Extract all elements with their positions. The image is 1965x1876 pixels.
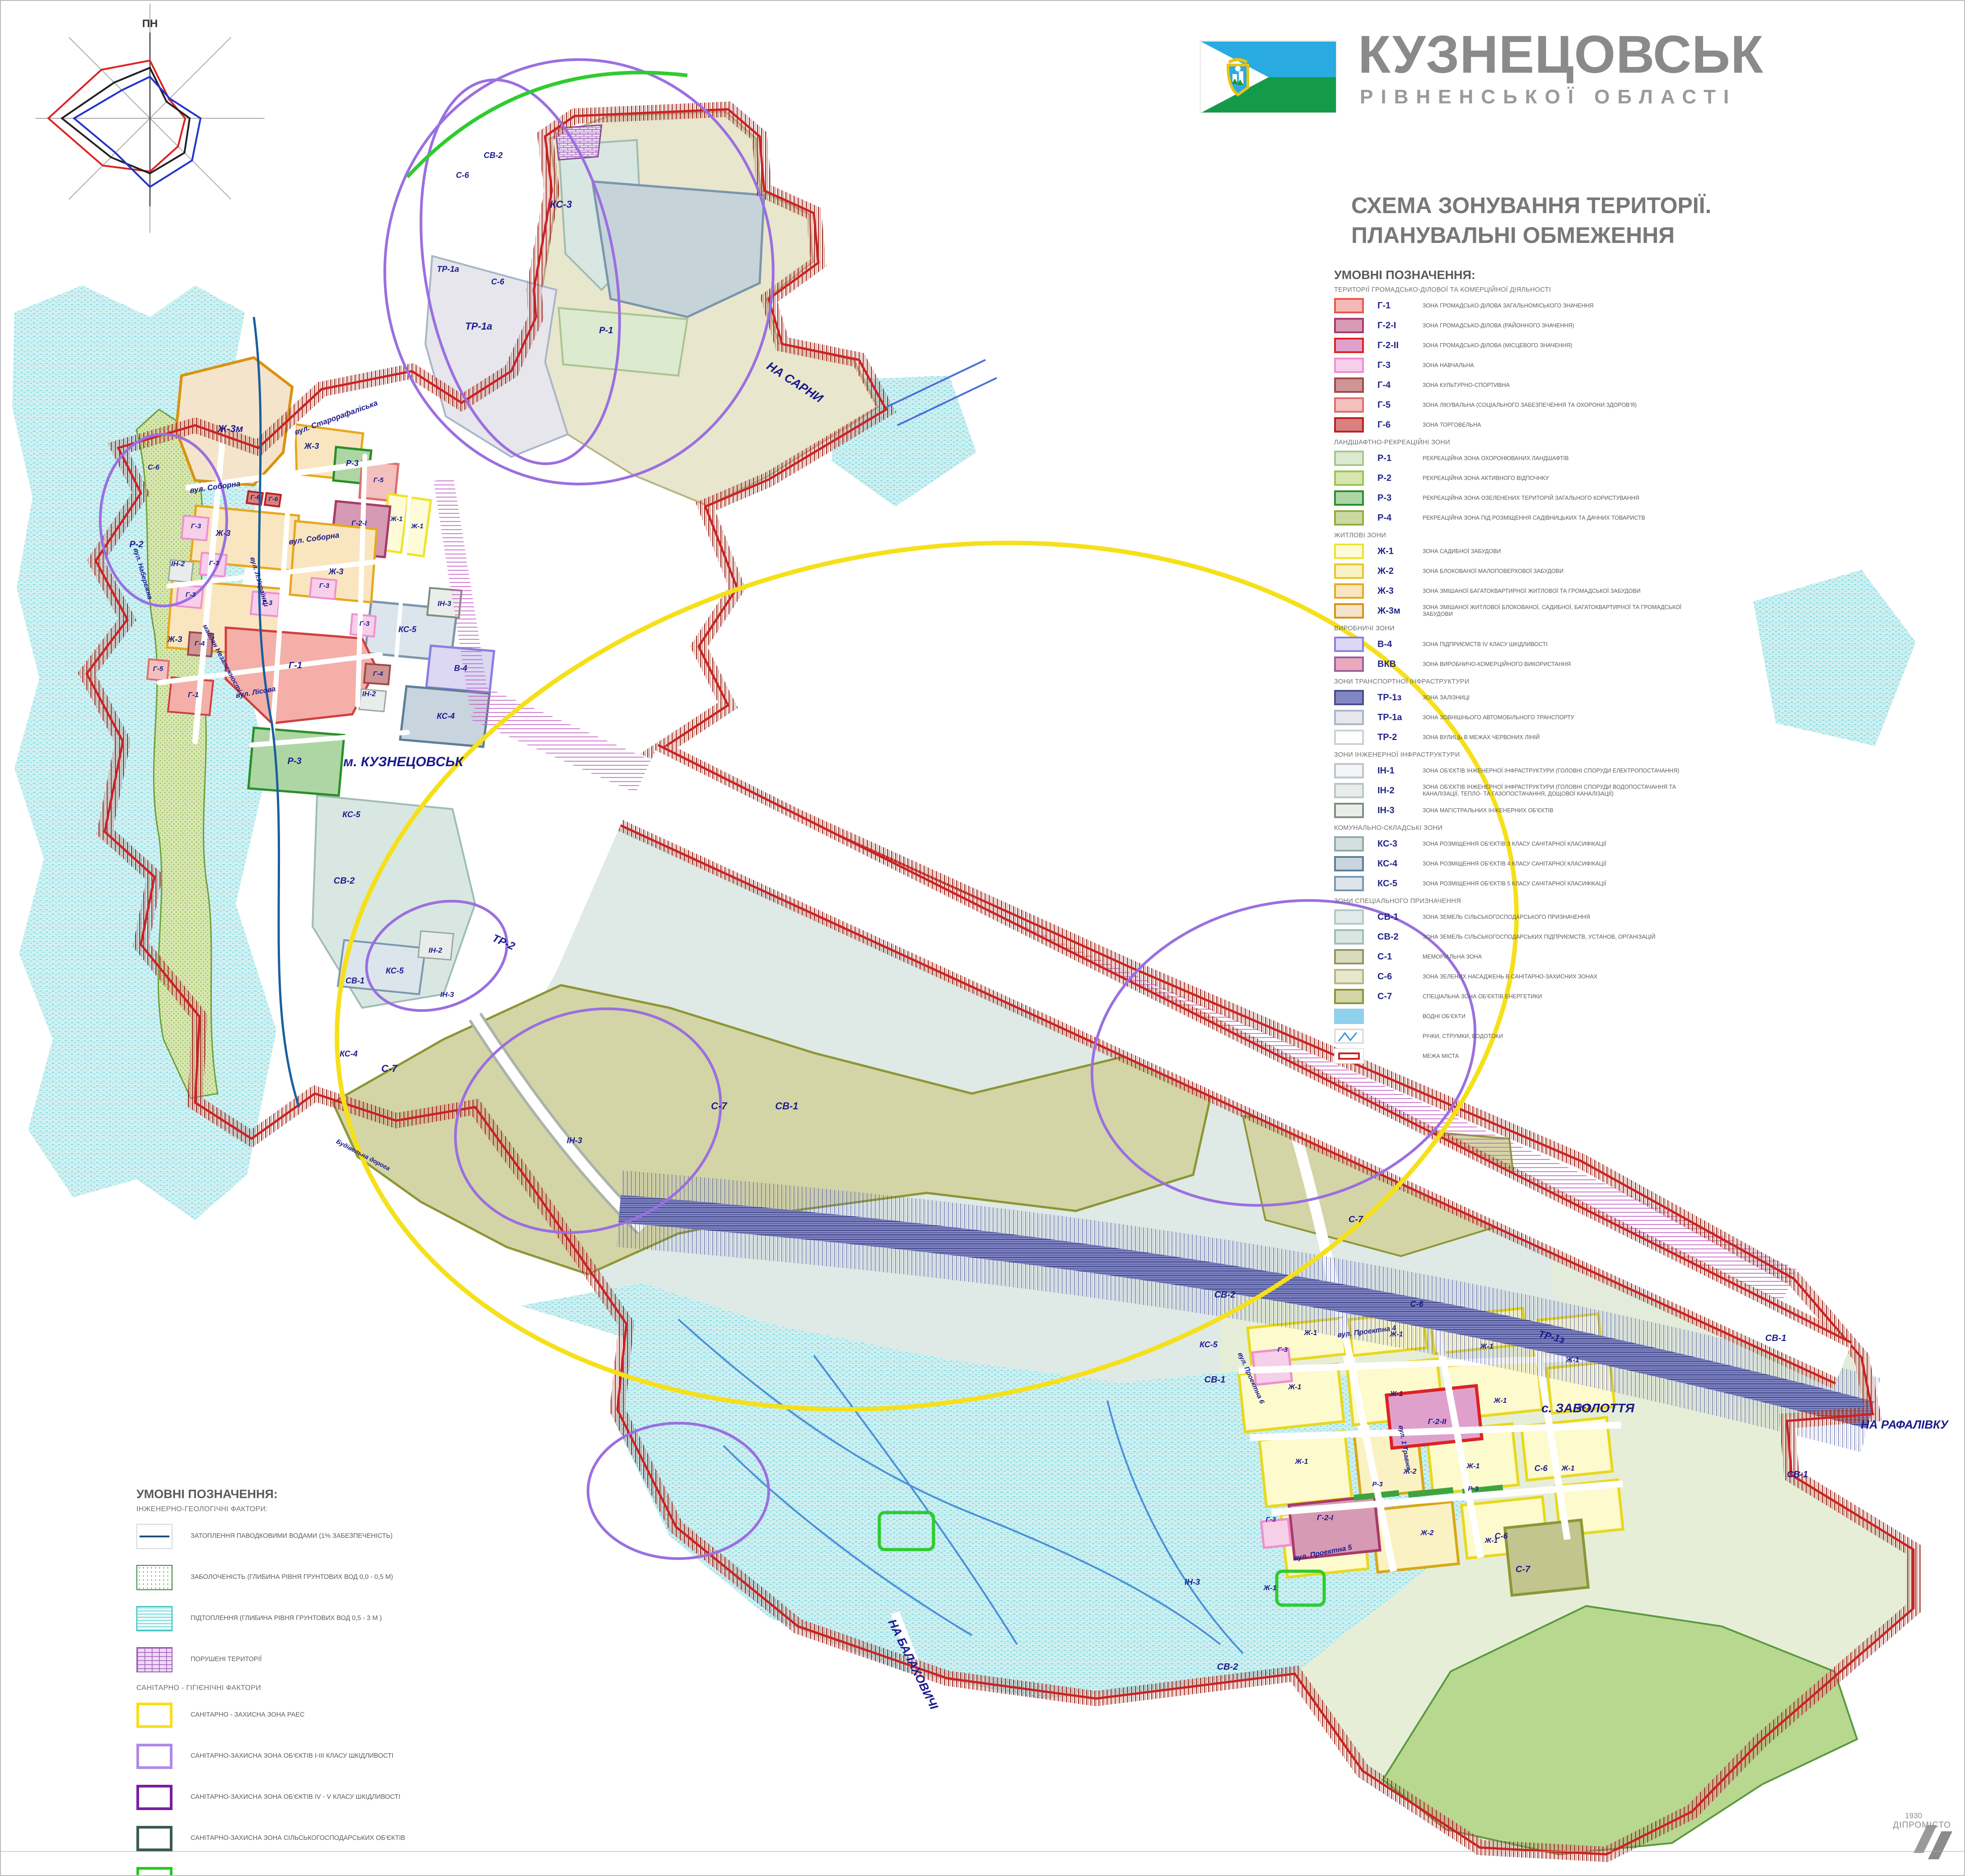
legend-zone-label: ЗОНА ЗМІШАНОЇ БАГАТОКВАРТИРНОЇ ЖИТЛОВОЇ …: [1423, 588, 1641, 595]
legend-swatch: [1334, 803, 1364, 818]
legend-zone-label: ЗОНА ГРОМАДСЬКО-ДІЛОВА (МІСЦЕВОГО ЗНАЧЕН…: [1423, 342, 1572, 349]
map-label: КС-3: [550, 199, 572, 210]
map-label: ТР-1а: [437, 265, 459, 274]
legend-zone-code: Р-1: [1377, 453, 1423, 464]
legend-zone-code: Г-2-І: [1377, 321, 1423, 331]
legend-zone-code: ТР-2: [1377, 732, 1423, 743]
map-label: Ж-1: [1493, 1397, 1507, 1405]
map-label: Г-4: [373, 670, 383, 678]
map-label: СВ-2: [334, 876, 355, 886]
legend-swatch: [1334, 1009, 1364, 1024]
legend-item: Р-3РЕКРЕАЦІЙНА ЗОНА ОЗЕЛЕНЕНИХ ТЕРИТОРІЙ…: [1334, 488, 1741, 508]
legend-swatch: [1334, 318, 1364, 333]
legend-swatch: [1334, 338, 1364, 353]
legend-factor-label: ЗАБОЛОЧЕНІСТЬ (ГЛИБИНА РІВНЯ ГРУНТОВИХ В…: [191, 1573, 393, 1581]
legend-swatch: [1334, 949, 1364, 964]
legend-zone-label: ЗОНА ПІДПРИЄМСТВ IV КЛАСУ ШКІДЛИВОСТІ: [1423, 641, 1548, 648]
map-label: КС-4: [340, 1049, 358, 1058]
map-label: Г-6: [268, 495, 278, 503]
legend-factor-label: ЗАТОПЛЕННЯ ПАВОДКОВИМИ ВОДАМИ (1% ЗАБЕЗП…: [191, 1532, 392, 1540]
legend-zone-code: СВ-2: [1377, 932, 1423, 942]
legend-swatch: [1334, 836, 1364, 852]
legend-item: В-4ЗОНА ПІДПРИЄМСТВ IV КЛАСУ ШКІДЛИВОСТІ: [1334, 634, 1741, 654]
legend-item: Г-5ЗОНА ЛІКУВАЛЬНА (СОЦІАЛЬНОГО ЗАБЕЗПЕЧ…: [1334, 395, 1741, 415]
logo-name: ДІПРОМІСТО: [1865, 1820, 1951, 1830]
legend-zone-label: ЗОНА РОЗМІЩЕННЯ ОБ'ЄКТІВ 5 КЛАСУ САНІТАР…: [1423, 880, 1606, 887]
legend-item: С-7СПЕЦІАЛЬНА ЗОНА ОБ'ЄКТІВ ЕНЕРГЕТИКИ: [1334, 987, 1741, 1006]
map-label: Ж-1: [390, 515, 402, 523]
map-label: С-6: [456, 171, 469, 180]
map-label: Г-4: [195, 640, 205, 647]
legend-swatch: [136, 1606, 173, 1631]
legend-swatch: [1334, 563, 1364, 579]
map-label: Р-3: [1372, 1480, 1383, 1488]
legend-item: САНІТАРНО-ЗАХИСНА ЗОНА СІЛЬСЬКОГОСПОДАРС…: [136, 1818, 611, 1859]
dipromisto-logo: 1930 ДІПРОМІСТО: [1865, 1811, 1951, 1830]
map-label: Ж-1: [411, 522, 423, 530]
legend-item: ЗАБОЛОЧЕНІСТЬ (ГЛИБИНА РІВНЯ ГРУНТОВИХ В…: [136, 1557, 611, 1598]
legend-zone-label: ЗОНА КУЛЬТУРНО-СПОРТИВНА: [1423, 382, 1510, 389]
legend-item: Г-2-ІІЗОНА ГРОМАДСЬКО-ДІЛОВА (МІСЦЕВОГО …: [1334, 335, 1741, 355]
map-label: КС-4: [437, 712, 455, 721]
region-subtitle: РІВНЕНСЬКОЇ ОБЛАСТІ: [1360, 86, 1764, 108]
legend-section-header: ЗОНИ ТРАНСПОРТНОЇ ІНФРАСТРУКТУРИ: [1334, 678, 1741, 685]
legend-zone-code: Ж-3: [1377, 586, 1423, 596]
legend-section-header: ЖИТЛОВІ ЗОНИ: [1334, 532, 1741, 539]
legend-zone-label: СПЕЦІАЛЬНА ЗОНА ОБ'ЄКТІВ ЕНЕРГЕТИКИ: [1423, 993, 1542, 1000]
map-label: Ж-3: [215, 529, 231, 538]
legend-zone-label: РЕКРЕАЦІЙНА ЗОНА АКТИВНОГО ВІДПОЧНКУ: [1423, 475, 1549, 482]
legend-swatch: [1334, 637, 1364, 652]
legend-zone-label: ЗОНА ВИРОБНИЧО-КОМЕРЦІЙНОГО ВИКОРИСТАННЯ: [1423, 661, 1571, 668]
legend-zone-label: ЗОНА ЗЕМЕЛЬ СІЛЬСЬКОГОСПОДАРСЬКИХ ПІДПРИ…: [1423, 934, 1656, 940]
legend-swatch: [1334, 876, 1364, 891]
legend-zone-code: Р-2: [1377, 473, 1423, 484]
map-label: Ж-1: [1303, 1329, 1317, 1337]
map-label: С-7: [711, 1100, 728, 1112]
legend-section-header: ЗОНИ СПЕЦІАЛЬНОГО ПРИЗНАЧЕННЯ: [1334, 898, 1741, 905]
legend-item: ІН-2ЗОНА ОБ'ЄКТІВ ІНЖЕНЕРНОЇ ІНФРАСТРУКТ…: [1334, 781, 1741, 801]
legend-zone-label: ЗОНА ТОРГОВЕЛЬНА: [1423, 422, 1481, 428]
legend-zone-label: ЗОНА ОБ'ЄКТІВ ІНЖЕНЕРНОЇ ІНФРАСТРУКТУРИ …: [1423, 784, 1712, 797]
legend-factor-label: ПОРУШЕНІ ТЕРИТОРІЇ: [191, 1656, 262, 1663]
legend-section-header: ТЕРИТОРІЇ ГРОМАДСЬКО-ДІЛОВОЇ ТА КОМЕРЦІЙ…: [1334, 286, 1741, 293]
legend-zone-label: ЗОНА ЗЕМЕЛЬ СІЛЬСЬКОГОСПОДАРСЬКОГО ПРИЗН…: [1423, 914, 1590, 921]
legend-item: Г-4ЗОНА КУЛЬТУРНО-СПОРТИВНА: [1334, 375, 1741, 395]
legend-swatch: [136, 1524, 173, 1549]
map-label: В-4: [454, 664, 467, 673]
legend-factor-label: САНІТАРНО-ЗАХИСНА ЗОНА ОБ'ЄКТІВ І-ІІІ КЛ…: [191, 1752, 393, 1760]
map-label: Г-3: [191, 522, 201, 530]
legend-zone-label: ЗОНА ЛІКУВАЛЬНА (СОЦІАЛЬНОГО ЗАБЕЗПЕЧЕНН…: [1423, 402, 1637, 409]
map-label: Г-3: [1278, 1346, 1288, 1354]
legend-swatch: [1334, 929, 1364, 945]
plan-sheet: м. КУЗНЕЦОВСЬКс. ЗАБОЛОТТЯНА САРНИНА РАФ…: [0, 0, 1965, 1876]
legend-factor-label: САНІТАРНО-ЗАХИСНА ЗОНА ОБ'ЄКТІВ IV - V К…: [191, 1793, 401, 1801]
map-label: С-6: [148, 464, 159, 471]
map-label: С-7: [1516, 1564, 1531, 1574]
legend-section-header: ЛАНДШАФТНО-РЕКРЕАЦІЙНІ ЗОНИ: [1334, 439, 1741, 446]
legend-zone-code: ІН-3: [1377, 805, 1423, 816]
title-block: КУЗНЕЦОВСЬК РІВНЕНСЬКОЇ ОБЛАСТІ: [1200, 28, 1950, 113]
map-label: ІН-2: [362, 690, 376, 698]
legend-swatch: [1334, 417, 1364, 433]
logo-year: 1930: [1865, 1811, 1922, 1820]
legend-swatch: [1334, 451, 1364, 466]
map-label: Г-1: [289, 661, 302, 670]
legend-zone-code: ТР-1а: [1377, 712, 1423, 723]
legend-zone-code: Ж-1: [1377, 546, 1423, 557]
legend-item: РІЧКИ, СТРУМКИ, ВОДОТОКИ: [1334, 1026, 1741, 1046]
zone-in2-a: [418, 931, 453, 960]
map-label: ТР-1а: [465, 321, 492, 332]
legend-section-header: ЗОНИ ІНЖЕНЕРНОЇ ІНФРАСТРУКТУРИ: [1334, 751, 1741, 759]
legend-item: ВКВЗОНА ВИРОБНИЧО-КОМЕРЦІЙНОГО ВИКОРИСТА…: [1334, 654, 1741, 674]
legend-item: С-6ЗОНА ЗЕЛЕНИХ НАСАДЖЕНЬ В САНІТАРНО-ЗА…: [1334, 967, 1741, 987]
legend-item: ПІДТОПЛЕННЯ (ГЛИБИНА РІВНЯ ГРУНТОВИХ ВОД…: [136, 1598, 611, 1639]
legend-item: ВОДНІ ОБ'ЄКТИ: [1334, 1006, 1741, 1026]
legend-zone-code: ТР-1з: [1377, 693, 1423, 703]
map-label: Ж-1: [1263, 1584, 1276, 1592]
map-label: Ж-2: [1420, 1529, 1433, 1537]
map-label: Г-6: [250, 493, 260, 501]
legend-zone-label: ЗОНА МАГІСТРАЛЬНИХ ІНЖЕНЕРНИХ ОБ'ЄКТІВ: [1423, 807, 1553, 814]
legend-swatch: [1334, 1048, 1364, 1064]
map-label: Г-5: [373, 476, 384, 484]
scheme-title: СХЕМА ЗОНУВАННЯ ТЕРИТОРІЇ. ПЛАНУВАЛЬНІ О…: [1351, 191, 1711, 250]
legend-swatch: [1334, 856, 1364, 871]
legend-item: Г-3ЗОНА НАВЧАЛЬНА: [1334, 355, 1741, 375]
map-label: Г-3: [359, 620, 370, 628]
legend-zone-label: ЗОНА ЗМІШАНОЇ ЖИТЛОВОЇ БЛОКОВАНОЇ, САДИБ…: [1423, 604, 1712, 618]
legend-zone-code: Г-2-ІІ: [1377, 340, 1423, 351]
zone-r1: [559, 308, 687, 376]
map-label: СВ-1: [775, 1100, 798, 1112]
map-label: СВ-1: [345, 976, 364, 985]
legend-swatch: [136, 1703, 173, 1728]
legend-zone-code: ВКВ: [1377, 659, 1423, 670]
legend-section-header: ІНЖЕНЕРНО-ГЕОЛОГІЧНІ ФАКТОРИ:: [136, 1505, 611, 1513]
legend-swatch: [1334, 544, 1364, 559]
legend-zone-label: ВОДНІ ОБ'ЄКТИ: [1423, 1013, 1466, 1020]
legend-swatch: [136, 1826, 173, 1851]
map-label: Р-3: [346, 459, 359, 468]
legend-factor-label: САНІТАРНО - ЗАХИСНА ЗОНА РАЕС: [191, 1711, 304, 1719]
legend-zone-code: Р-4: [1377, 513, 1423, 523]
map-label: Ж-1: [1577, 1404, 1590, 1411]
map-label: ІН-2: [171, 560, 185, 568]
legend-factor-label: ПІДТОПЛЕННЯ (ГЛИБИНА РІВНЯ ГРУНТОВИХ ВОД…: [191, 1615, 382, 1622]
legend-swatch: [1334, 490, 1364, 506]
legend-zone-code: Г-5: [1377, 400, 1423, 410]
map-label: С-7: [1349, 1215, 1363, 1224]
legend-zone-label: РІЧКИ, СТРУМКИ, ВОДОТОКИ: [1423, 1033, 1503, 1040]
legend-zone-code: Ж-3м: [1377, 606, 1423, 616]
legend-item: ТР-1зЗОНА ЗАЛІЗНИЦІ: [1334, 688, 1741, 708]
map-label: Г-2-І: [351, 520, 367, 527]
legend-item: САНІТАРНО-ЗАХИСНА ЗОНА КЛАДОВИЩ: [136, 1859, 611, 1876]
map-label: СВ-2: [484, 151, 503, 160]
legend-item: ЗАТОПЛЕННЯ ПАВОДКОВИМИ ВОДАМИ (1% ЗАБЕЗП…: [136, 1516, 611, 1557]
legend-zone-code: КС-5: [1377, 879, 1423, 889]
map-label: С-6: [491, 277, 504, 286]
map-label: КС-5: [342, 810, 361, 819]
legend-zone-code: Ж-2: [1377, 566, 1423, 577]
legend-swatch: [1334, 470, 1364, 486]
legend-zone-label: ЗОНА ГРОМАДСЬКО-ДІЛОВА (РАЙОННОГО ЗНАЧЕН…: [1423, 322, 1574, 329]
legend-swatch: [136, 1647, 173, 1672]
map-label: КС-5: [1200, 1340, 1218, 1349]
legend-swatch: [136, 1744, 173, 1769]
legend-item: Р-1РЕКРЕАЦІЙНА ЗОНА ОХОРОНЮВАНИХ ЛАНДШАФ…: [1334, 448, 1741, 468]
map-label: Г-3: [186, 591, 196, 599]
legend-swatch: [1334, 730, 1364, 745]
legend-swatch: [1334, 358, 1364, 373]
legend-item: КС-4ЗОНА РОЗМІЩЕННЯ ОБ'ЄКТІВ 4 КЛАСУ САН…: [1334, 854, 1741, 874]
legend-item: ТР-2ЗОНА ВУЛИЦЬ В МЕЖАХ ЧЕРВОНИХ ЛІНІЙ: [1334, 727, 1741, 747]
map-label: Г-3: [209, 559, 219, 567]
legend-item: ІН-3ЗОНА МАГІСТРАЛЬНИХ ІНЖЕНЕРНИХ ОБ'ЄКТ…: [1334, 801, 1741, 820]
legend-zone-label: ЗОНА РОЗМІЩЕННЯ ОБ'ЄКТІВ 3 КЛАСУ САНІТАР…: [1423, 841, 1606, 847]
flag-placeholder: [1200, 41, 1336, 113]
map-label: С-6: [1534, 1464, 1548, 1473]
legend-item: С-1МЕМОРІАЛЬНА ЗОНА: [1334, 947, 1741, 967]
legend-item: СВ-1ЗОНА ЗЕМЕЛЬ СІЛЬСЬКОГОСПОДАРСЬКОГО П…: [1334, 907, 1741, 927]
legend-zone-label: ЗОНА САДИБНОЇ ЗАБУДОВИ: [1423, 548, 1501, 555]
map-label: Ж-1: [1484, 1537, 1498, 1545]
legend-item: Г-2-ІЗОНА ГРОМАДСЬКО-ДІЛОВА (РАЙОННОГО З…: [1334, 316, 1741, 335]
legend-zone-code: Г-4: [1377, 380, 1423, 391]
legend-swatch: [136, 1867, 173, 1876]
legend-swatch: [136, 1565, 173, 1590]
legend-swatch: [1334, 690, 1364, 705]
legend-item: Р-2РЕКРЕАЦІЙНА ЗОНА АКТИВНОГО ВІДПОЧНКУ: [1334, 468, 1741, 488]
legend-zone-code: КС-3: [1377, 839, 1423, 849]
legend-zone-code: ІН-1: [1377, 766, 1423, 776]
legend-swatch: [1334, 763, 1364, 778]
legend-swatch: [136, 1785, 173, 1810]
legend-section-header: САНІТАРНО - ГІГІЄНІЧНІ ФАКТОРИ: [136, 1684, 611, 1692]
legend-zone-code: КС-4: [1377, 859, 1423, 869]
legend-swatch: [1334, 377, 1364, 393]
legend-zone-label: РЕКРЕАЦІЙНА ЗОНА ПІД РОЗМІЩЕННЯ САДІВНИЦ…: [1423, 515, 1645, 521]
legend-item: ІН-1ЗОНА ОБ'ЄКТІВ ІНЖЕНЕРНОЇ ІНФРАСТРУКТ…: [1334, 761, 1741, 781]
legend-zone-code: Г-6: [1377, 420, 1423, 430]
legend-zone-label: ЗОНА ЗАЛІЗНИЦІ: [1423, 694, 1470, 701]
legend-item: Ж-3ЗОНА ЗМІШАНОЇ БАГАТОКВАРТИРНОЇ ЖИТЛОВ…: [1334, 581, 1741, 601]
legend-swatch: [1334, 783, 1364, 798]
map-label: Ж-3: [167, 635, 182, 644]
legend-title-2: УМОВНІ ПОЗНАЧЕННЯ:: [136, 1487, 611, 1501]
map-label: Р-1: [599, 326, 613, 335]
legend-swatch: [1334, 397, 1364, 413]
legend-swatch: [1334, 510, 1364, 526]
legend-zone-label: ЗОНА ОБ'ЄКТІВ ІНЖЕНЕРНОЇ ІНФРАСТРУКТУРИ …: [1423, 768, 1679, 774]
map-label: Г-3: [1266, 1516, 1276, 1523]
legend-item: КС-5ЗОНА РОЗМІЩЕННЯ ОБ'ЄКТІВ 5 КЛАСУ САН…: [1334, 874, 1741, 894]
legend-restrictions: УМОВНІ ПОЗНАЧЕННЯ: ІНЖЕНЕРНО-ГЕОЛОГІЧНІ …: [136, 1487, 611, 1876]
legend-zone-label: РЕКРЕАЦІЙНА ЗОНА ОЗЕЛЕНЕНИХ ТЕРИТОРІЙ ЗА…: [1423, 495, 1639, 502]
map-label: СВ-2: [1217, 1662, 1238, 1672]
map-label: ІН-3: [440, 991, 454, 999]
legend-zone-code: С-1: [1377, 952, 1423, 962]
legend-zone-label: МЕЖА МІСТА: [1423, 1053, 1459, 1060]
map-label: Ж-1: [1561, 1465, 1574, 1472]
legend-zone-label: ЗОНА РОЗМІЩЕННЯ ОБ'ЄКТІВ 4 КЛАСУ САНІТАР…: [1423, 861, 1606, 867]
legend-item: ПОРУШЕНІ ТЕРИТОРІЇ: [136, 1639, 611, 1680]
map-label: Ж-3м: [217, 423, 243, 434]
legend-zone-label: ЗОНА НАВЧАЛЬНА: [1423, 362, 1474, 369]
map-label: КС-5: [398, 625, 417, 634]
legend-zone-label: РЕКРЕАЦІЙНА ЗОНА ОХОРОНЮВАНИХ ЛАНДШАФТІВ: [1423, 455, 1568, 462]
legend-zone-code: Р-3: [1377, 493, 1423, 503]
legend-zone-code: Г-3: [1377, 360, 1423, 371]
legend-zone-label: ЗОНА ЗОВНІШНЬОГО АВТОМОБІЛЬНОГО ТРАНСПОР…: [1423, 714, 1574, 721]
legend-zone-label: ЗОНА ЗЕЛЕНИХ НАСАДЖЕНЬ В САНІТАРНО-ЗАХИС…: [1423, 973, 1597, 980]
map-label: ІН-2: [429, 947, 442, 954]
map-label: Г-5: [153, 665, 163, 673]
map-label: С-6: [1410, 1299, 1424, 1308]
map-label: Ж-3: [304, 442, 319, 451]
legend-swatch: [1334, 656, 1364, 672]
legend-zone-label: МЕМОРІАЛЬНА ЗОНА: [1423, 954, 1482, 960]
map-label: Г-2-ІІ: [1428, 1417, 1447, 1426]
map-label: Ж-1: [1389, 1390, 1403, 1398]
wind-rose: ПН: [35, 4, 264, 233]
legend-section-header: КОМУНАЛЬНО-СКЛАДСЬКІ ЗОНИ: [1334, 824, 1741, 832]
map-label: Ж-1: [1288, 1383, 1301, 1391]
map-label: Ж-1: [1565, 1356, 1579, 1364]
map-label: ІН-3: [438, 600, 451, 608]
legend-item: САНІТАРНО - ЗАХИСНА ЗОНА РАЕС: [136, 1694, 611, 1736]
legend-swatch: [1334, 969, 1364, 984]
legend-item: Ж-1ЗОНА САДИБНОЇ ЗАБУДОВИ: [1334, 541, 1741, 561]
legend-item: САНІТАРНО-ЗАХИСНА ЗОНА ОБ'ЄКТІВ IV - V К…: [136, 1777, 611, 1818]
map-label: м. КУЗНЕЦОВСЬК: [343, 754, 464, 769]
map-label: СВ-1: [1787, 1470, 1808, 1480]
map-label: НА РАФАЛІВКУ: [1861, 1418, 1949, 1431]
map-label: Ж-1: [1294, 1458, 1308, 1466]
legend-zoning: УМОВНІ ПОЗНАЧЕННЯ: ТЕРИТОРІЇ ГРОМАДСЬКО-…: [1334, 268, 1741, 1066]
wetland-east: [1753, 570, 1916, 746]
map-label: КС-5: [386, 966, 404, 975]
legend-swatch: [1334, 298, 1364, 313]
legend-zone-label: ЗОНА ВУЛИЦЬ В МЕЖАХ ЧЕРВОНИХ ЛІНІЙ: [1423, 734, 1540, 741]
legend-item: КС-3ЗОНА РОЗМІЩЕННЯ ОБ'ЄКТІВ 3 КЛАСУ САН…: [1334, 834, 1741, 854]
map-label: СВ-1: [1765, 1333, 1787, 1343]
legend-item: Ж-3мЗОНА ЗМІШАНОЇ ЖИТЛОВОЇ БЛОКОВАНОЇ, С…: [1334, 601, 1741, 621]
legend-item: САНІТАРНО-ЗАХИСНА ЗОНА ОБ'ЄКТІВ І-ІІІ КЛ…: [136, 1736, 611, 1777]
map-label: Г-1: [188, 691, 199, 699]
legend-swatch: [1334, 710, 1364, 725]
wind-rose-north-label: ПН: [142, 18, 158, 30]
page-title: КУЗНЕЦОВСЬК: [1358, 28, 1764, 81]
map-label: Ж-1: [1480, 1343, 1493, 1350]
map-label: Р-3: [1468, 1485, 1479, 1493]
map-label: ІН-3: [1185, 1578, 1200, 1587]
legend-factor-label: САНІТАРНО-ЗАХИСНА ЗОНА СІЛЬСЬКОГОСПОДАРС…: [191, 1834, 405, 1842]
legend-swatch: [1334, 583, 1364, 599]
frame-line: [1, 1851, 1964, 1852]
map-label: Ж-3: [328, 567, 344, 576]
legend-item: Р-4РЕКРЕАЦІЙНА ЗОНА ПІД РОЗМІЩЕННЯ САДІВ…: [1334, 508, 1741, 528]
map-label: Р-3: [287, 756, 301, 766]
legend-swatch: [1334, 909, 1364, 925]
map-label: С-7: [381, 1063, 398, 1074]
legend-item: Г-6ЗОНА ТОРГОВЕЛЬНА: [1334, 415, 1741, 435]
map-label: СВ-1: [1204, 1375, 1226, 1385]
legend-zone-code: С-6: [1377, 972, 1423, 982]
legend-swatch: [1334, 603, 1364, 619]
legend-zone-code: С-7: [1377, 992, 1423, 1002]
legend-title: УМОВНІ ПОЗНАЧЕННЯ:: [1334, 268, 1741, 282]
wind-rose-series-black: [62, 68, 190, 173]
map-label: Ж-1: [1466, 1462, 1480, 1470]
legend-zone-code: СВ-1: [1377, 912, 1423, 922]
map-label: СВ-2: [1214, 1290, 1236, 1300]
map-label: Г-3: [319, 582, 330, 590]
legend-swatch: [1334, 989, 1364, 1004]
legend-item: Ж-2ЗОНА БЛОКОВАНОЇ МАЛОПОВЕРХОВОЇ ЗАБУДО…: [1334, 561, 1741, 581]
legend-zone-code: В-4: [1377, 639, 1423, 650]
legend-item: ТР-1аЗОНА ЗОВНІШНЬОГО АВТОМОБІЛЬНОГО ТРА…: [1334, 708, 1741, 727]
legend-zone-code: ІН-2: [1377, 786, 1423, 796]
map-label: Г-2-І: [1317, 1513, 1334, 1522]
legend-zone-code: Г-1: [1377, 301, 1423, 311]
legend-item: СВ-2ЗОНА ЗЕМЕЛЬ СІЛЬСЬКОГОСПОДАРСЬКИХ ПІ…: [1334, 927, 1741, 947]
legend-zone-label: ЗОНА БЛОКОВАНОЇ МАЛОПОВЕРХОВОЇ ЗАБУДОВИ: [1423, 568, 1564, 575]
legend-section-header: ВИРОБНИЧІ ЗОНИ: [1334, 625, 1741, 632]
legend-item: МЕЖА МІСТА: [1334, 1046, 1741, 1066]
legend-zone-label: ЗОНА ГРОМАДСЬКО-ДІЛОВА ЗАГАЛЬНОМІСЬКОГО …: [1423, 303, 1594, 309]
map-label: ІН-3: [567, 1136, 582, 1145]
legend-swatch: [1334, 1029, 1364, 1044]
legend-item: Г-1ЗОНА ГРОМАДСЬКО-ДІЛОВА ЗАГАЛЬНОМІСЬКО…: [1334, 296, 1741, 316]
